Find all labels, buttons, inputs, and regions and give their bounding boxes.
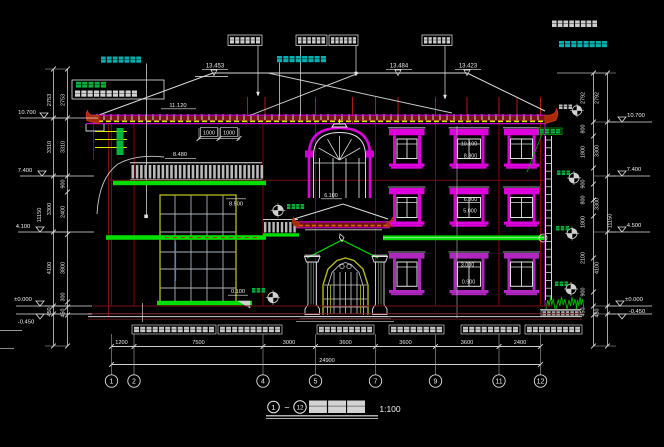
svg-text:-0.450: -0.450 <box>629 309 645 315</box>
svg-text:1000: 1000 <box>223 131 235 137</box>
svg-text:1000: 1000 <box>203 131 215 137</box>
svg-text:~: ~ <box>284 403 289 413</box>
svg-text:24900: 24900 <box>319 358 335 364</box>
svg-text:2792: 2792 <box>581 92 587 104</box>
svg-text:800: 800 <box>581 196 587 205</box>
svg-text:6.100: 6.100 <box>324 193 338 199</box>
svg-text:2400: 2400 <box>61 206 67 218</box>
svg-text:7500: 7500 <box>192 340 204 346</box>
svg-text:±0.000: ±0.000 <box>14 297 32 303</box>
svg-text:3300: 3300 <box>595 198 601 210</box>
svg-text:9: 9 <box>434 379 438 386</box>
svg-text:12: 12 <box>296 405 304 412</box>
svg-text:13.423: 13.423 <box>459 64 478 70</box>
svg-text:2753: 2753 <box>47 94 53 106</box>
svg-text:2753: 2753 <box>61 94 67 106</box>
svg-text:3600: 3600 <box>339 340 351 346</box>
svg-text:3600: 3600 <box>461 340 473 346</box>
svg-text:11.120: 11.120 <box>169 103 186 109</box>
svg-text:6.800: 6.800 <box>464 197 478 203</box>
svg-text:1200: 1200 <box>115 340 127 346</box>
svg-text:450: 450 <box>595 309 601 318</box>
svg-text:900: 900 <box>61 180 67 189</box>
svg-text:10.700: 10.700 <box>627 113 645 119</box>
svg-text:2: 2 <box>132 379 136 386</box>
svg-text:5.000: 5.000 <box>463 209 477 215</box>
svg-text:11150: 11150 <box>608 214 614 229</box>
svg-text:3300: 3300 <box>595 145 601 157</box>
svg-text:3310: 3310 <box>61 141 67 153</box>
svg-text:2100: 2100 <box>581 252 587 264</box>
svg-text:10.700: 10.700 <box>18 110 36 116</box>
svg-text:900: 900 <box>581 180 587 189</box>
svg-text:8.300: 8.300 <box>464 154 478 160</box>
svg-text:11150: 11150 <box>37 208 43 223</box>
svg-text:450: 450 <box>47 307 53 316</box>
svg-text:13.484: 13.484 <box>390 64 409 70</box>
svg-text:3.000: 3.000 <box>461 263 475 269</box>
svg-text:-0.450: -0.450 <box>18 320 34 326</box>
svg-text:1: 1 <box>271 403 275 412</box>
svg-text:800: 800 <box>581 125 587 134</box>
svg-text:1:100: 1:100 <box>379 404 401 414</box>
svg-text:4100: 4100 <box>47 262 53 274</box>
svg-text:±0.000: ±0.000 <box>625 297 643 303</box>
svg-text:4100: 4100 <box>595 262 601 274</box>
svg-text:4.500: 4.500 <box>627 223 642 229</box>
svg-text:3800: 3800 <box>61 262 67 274</box>
svg-text:2792: 2792 <box>595 92 601 104</box>
svg-text:12: 12 <box>537 379 545 386</box>
svg-text:11: 11 <box>495 379 502 386</box>
svg-text:450: 450 <box>61 309 67 318</box>
svg-text:2400: 2400 <box>514 340 526 346</box>
svg-text:0.900: 0.900 <box>462 280 476 286</box>
svg-text:8.480: 8.480 <box>173 152 187 158</box>
svg-text:7.400: 7.400 <box>18 168 33 174</box>
svg-text:1800: 1800 <box>581 216 587 228</box>
svg-text:4.100: 4.100 <box>16 224 31 230</box>
svg-text:300: 300 <box>61 293 67 302</box>
svg-text:900: 900 <box>581 288 587 297</box>
svg-text:3310: 3310 <box>47 141 53 153</box>
svg-text:7: 7 <box>374 379 378 386</box>
svg-text:1: 1 <box>110 379 114 386</box>
svg-text:7.400: 7.400 <box>627 167 642 173</box>
svg-text:1800: 1800 <box>581 146 587 158</box>
svg-text:3600: 3600 <box>399 340 411 346</box>
svg-text:8.500: 8.500 <box>229 202 243 208</box>
svg-text:3000: 3000 <box>283 340 295 346</box>
svg-text:13.453: 13.453 <box>206 64 225 70</box>
svg-text:450: 450 <box>581 308 587 317</box>
svg-text:3300: 3300 <box>47 203 53 215</box>
svg-text:5: 5 <box>314 379 318 386</box>
svg-text:10.100: 10.100 <box>461 142 478 148</box>
svg-text:4: 4 <box>261 379 265 386</box>
svg-text:0.100: 0.100 <box>231 289 245 295</box>
